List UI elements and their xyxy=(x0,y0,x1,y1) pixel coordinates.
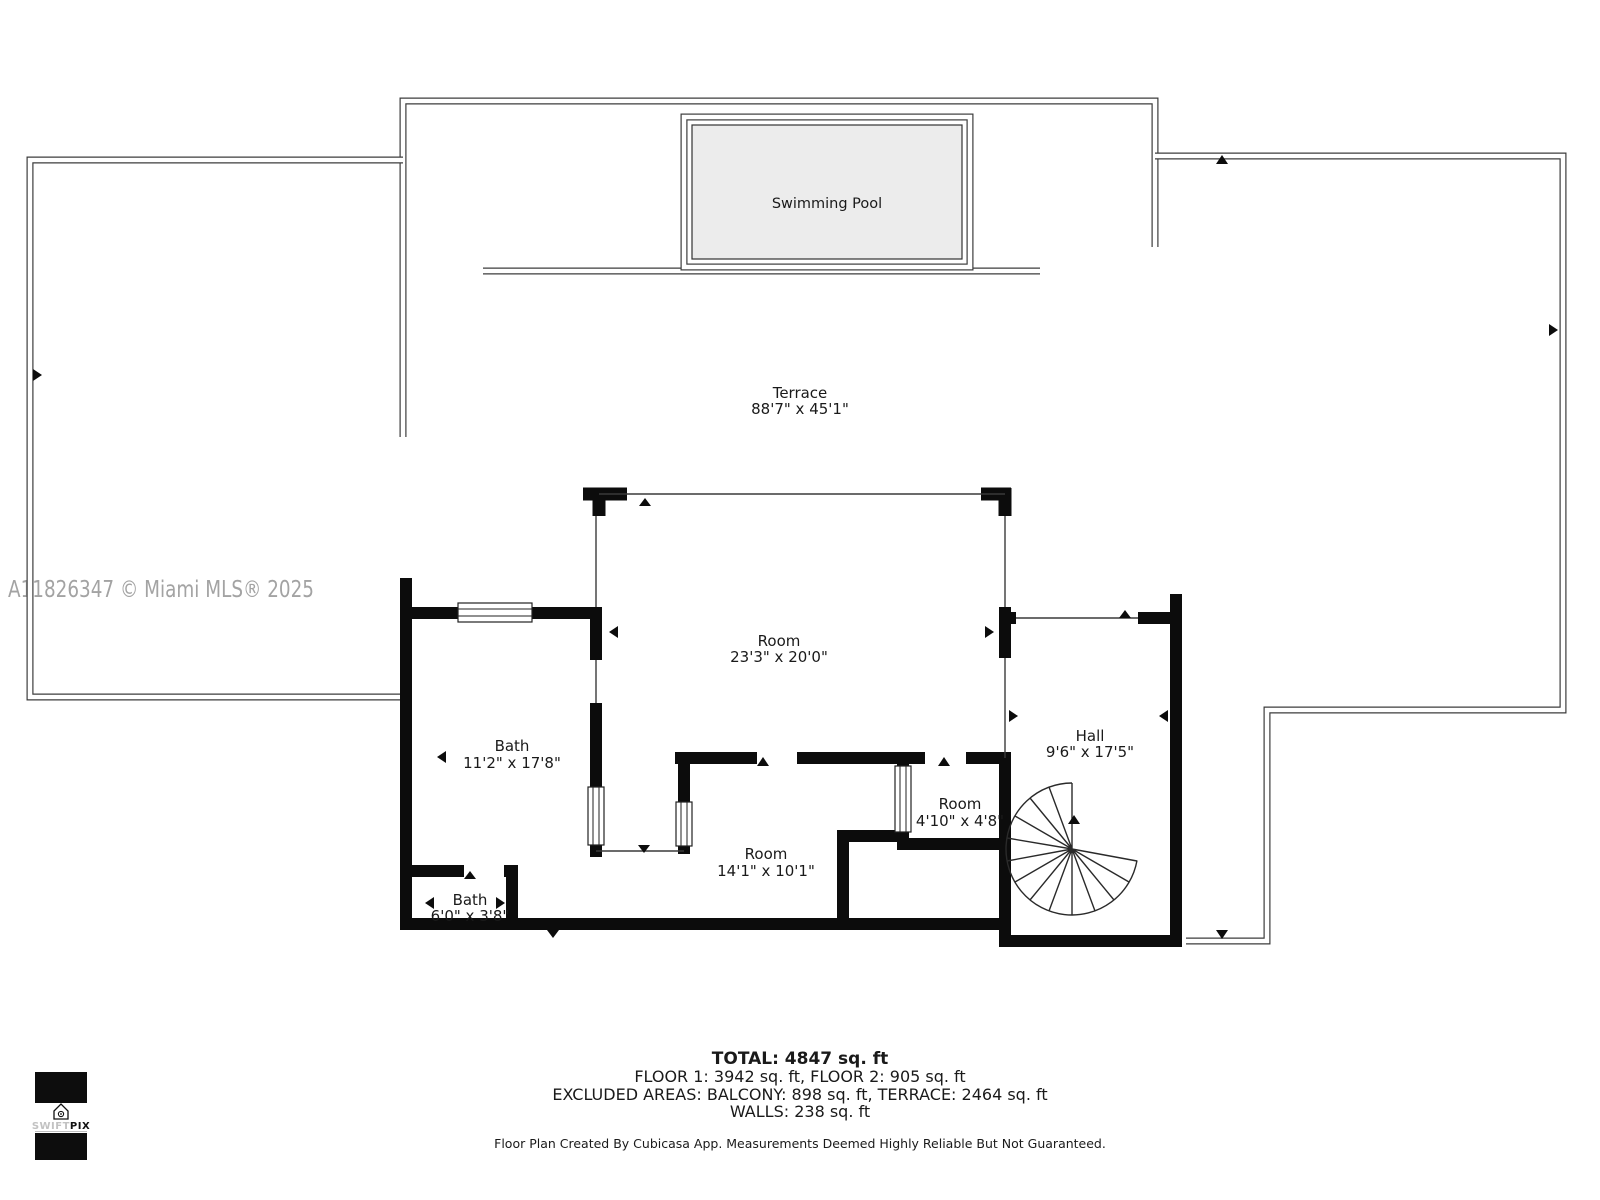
bath-large-label: Bath xyxy=(495,737,530,755)
disclaimer-text: Floor Plan Created By Cubicasa App. Meas… xyxy=(494,1136,1106,1151)
main-room-dims: 23'3" x 20'0" xyxy=(730,648,828,666)
window-icon xyxy=(895,766,911,832)
glass-walls xyxy=(596,494,1138,851)
windows xyxy=(458,603,911,846)
bath-small-dims: 6'0" x 3'8" xyxy=(431,907,510,925)
floor-plan-canvas: A11826347 © Miami MLS® 2025 Swimming Poo… xyxy=(0,0,1600,1200)
pool-label: Swimming Pool xyxy=(772,196,882,212)
logo-block-bottom xyxy=(35,1133,87,1160)
logo-wordmark: SWIFTPIX xyxy=(32,1121,90,1132)
closet-room-label: Room xyxy=(939,795,982,813)
window-icon xyxy=(676,802,692,846)
swiftpix-logo: SWIFTPIX xyxy=(32,1072,90,1160)
logo-block-top xyxy=(35,1072,87,1103)
middle-room-dims: 14'1" x 10'1" xyxy=(717,862,815,880)
house-icon xyxy=(54,1104,68,1119)
bath-large-dims: 11'2" x 17'8" xyxy=(463,754,561,772)
room-labels: Terrace 88'7" x 45'1" Room 23'3" x 20'0"… xyxy=(431,384,1134,925)
walls-area-text: WALLS: 238 sq. ft xyxy=(730,1102,870,1121)
closet-room-dims: 4'10" x 4'8" xyxy=(916,812,1004,830)
swimming-pool: Swimming Pool xyxy=(684,117,970,267)
window-icon xyxy=(588,787,604,845)
window-icon xyxy=(458,603,532,622)
middle-room-label: Room xyxy=(745,845,788,863)
area-summary: TOTAL: 4847 sq. ft FLOOR 1: 3942 sq. ft,… xyxy=(494,1049,1106,1151)
total-area-text: TOTAL: 4847 sq. ft xyxy=(712,1049,888,1069)
hall-dims: 9'6" x 17'5" xyxy=(1046,743,1134,761)
mls-watermark: A11826347 © Miami MLS® 2025 xyxy=(8,577,314,603)
floors-area-text: FLOOR 1: 3942 sq. ft, FLOOR 2: 905 sq. f… xyxy=(634,1067,965,1086)
terrace-dims: 88'7" x 45'1" xyxy=(751,400,849,418)
spiral-staircase-icon xyxy=(1006,783,1137,915)
